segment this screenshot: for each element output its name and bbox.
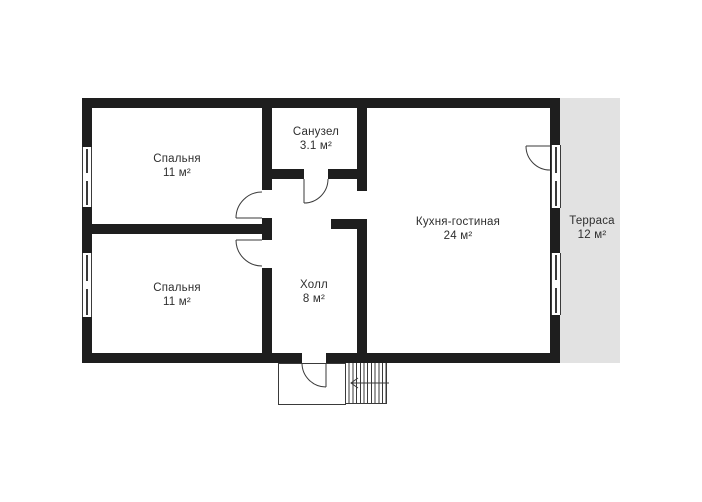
wall-kitchen-stub: [331, 219, 367, 229]
door-swing-bedroom-bottom: [236, 240, 262, 266]
room-label-kitchen-living: Кухня-гостиная 24 м²: [416, 215, 500, 243]
room-label-bedroom-top: Спальня 11 м²: [153, 152, 201, 180]
room-name: Холл: [300, 278, 328, 292]
room-name: Кухня-гостиная: [416, 215, 500, 229]
room-area: 11 м²: [153, 166, 201, 180]
wall-right: [550, 98, 560, 363]
entrance-porch: [278, 363, 346, 405]
room-name: Спальня: [153, 281, 201, 295]
door-opening-entrance: [302, 353, 326, 363]
room-name: Санузел: [293, 125, 339, 139]
room-area: 8 м²: [300, 292, 328, 306]
door-opening-bedroom-bottom: [262, 240, 272, 268]
room-label-bathroom: Санузел 3.1 м²: [293, 125, 339, 153]
terrace-door-window: [551, 145, 561, 208]
wall-kitchen-left: [357, 108, 367, 363]
room-name: Спальня: [153, 152, 201, 166]
door-opening-bathroom: [304, 169, 328, 179]
floor-plan: Спальня 11 м² Спальня 11 м² Санузел 3.1 …: [0, 0, 702, 502]
wall-bedroom-divider: [82, 224, 272, 234]
passage-kitchen: [357, 191, 367, 219]
room-label-bedroom-bottom: Спальня 11 м²: [153, 281, 201, 309]
door-opening-bedroom-top: [262, 190, 272, 218]
door-swing-bedroom-top: [236, 192, 262, 218]
room-label-hall: Холл 8 м²: [300, 278, 328, 306]
window-bedroom-bottom: [82, 253, 92, 317]
room-area: 3.1 м²: [293, 139, 339, 153]
room-label-terrace: Терраса 12 м²: [569, 214, 615, 242]
door-swing-bathroom: [304, 179, 328, 203]
room-area: 11 м²: [153, 295, 201, 309]
window-bedroom-top: [82, 147, 92, 207]
room-area: 24 м²: [416, 229, 500, 243]
door-swing-terrace: [526, 146, 550, 170]
staircase: [345, 363, 387, 404]
room-name: Терраса: [569, 214, 615, 228]
window-kitchen: [551, 253, 561, 315]
wall-top: [82, 98, 560, 108]
room-area: 12 м²: [569, 228, 615, 242]
